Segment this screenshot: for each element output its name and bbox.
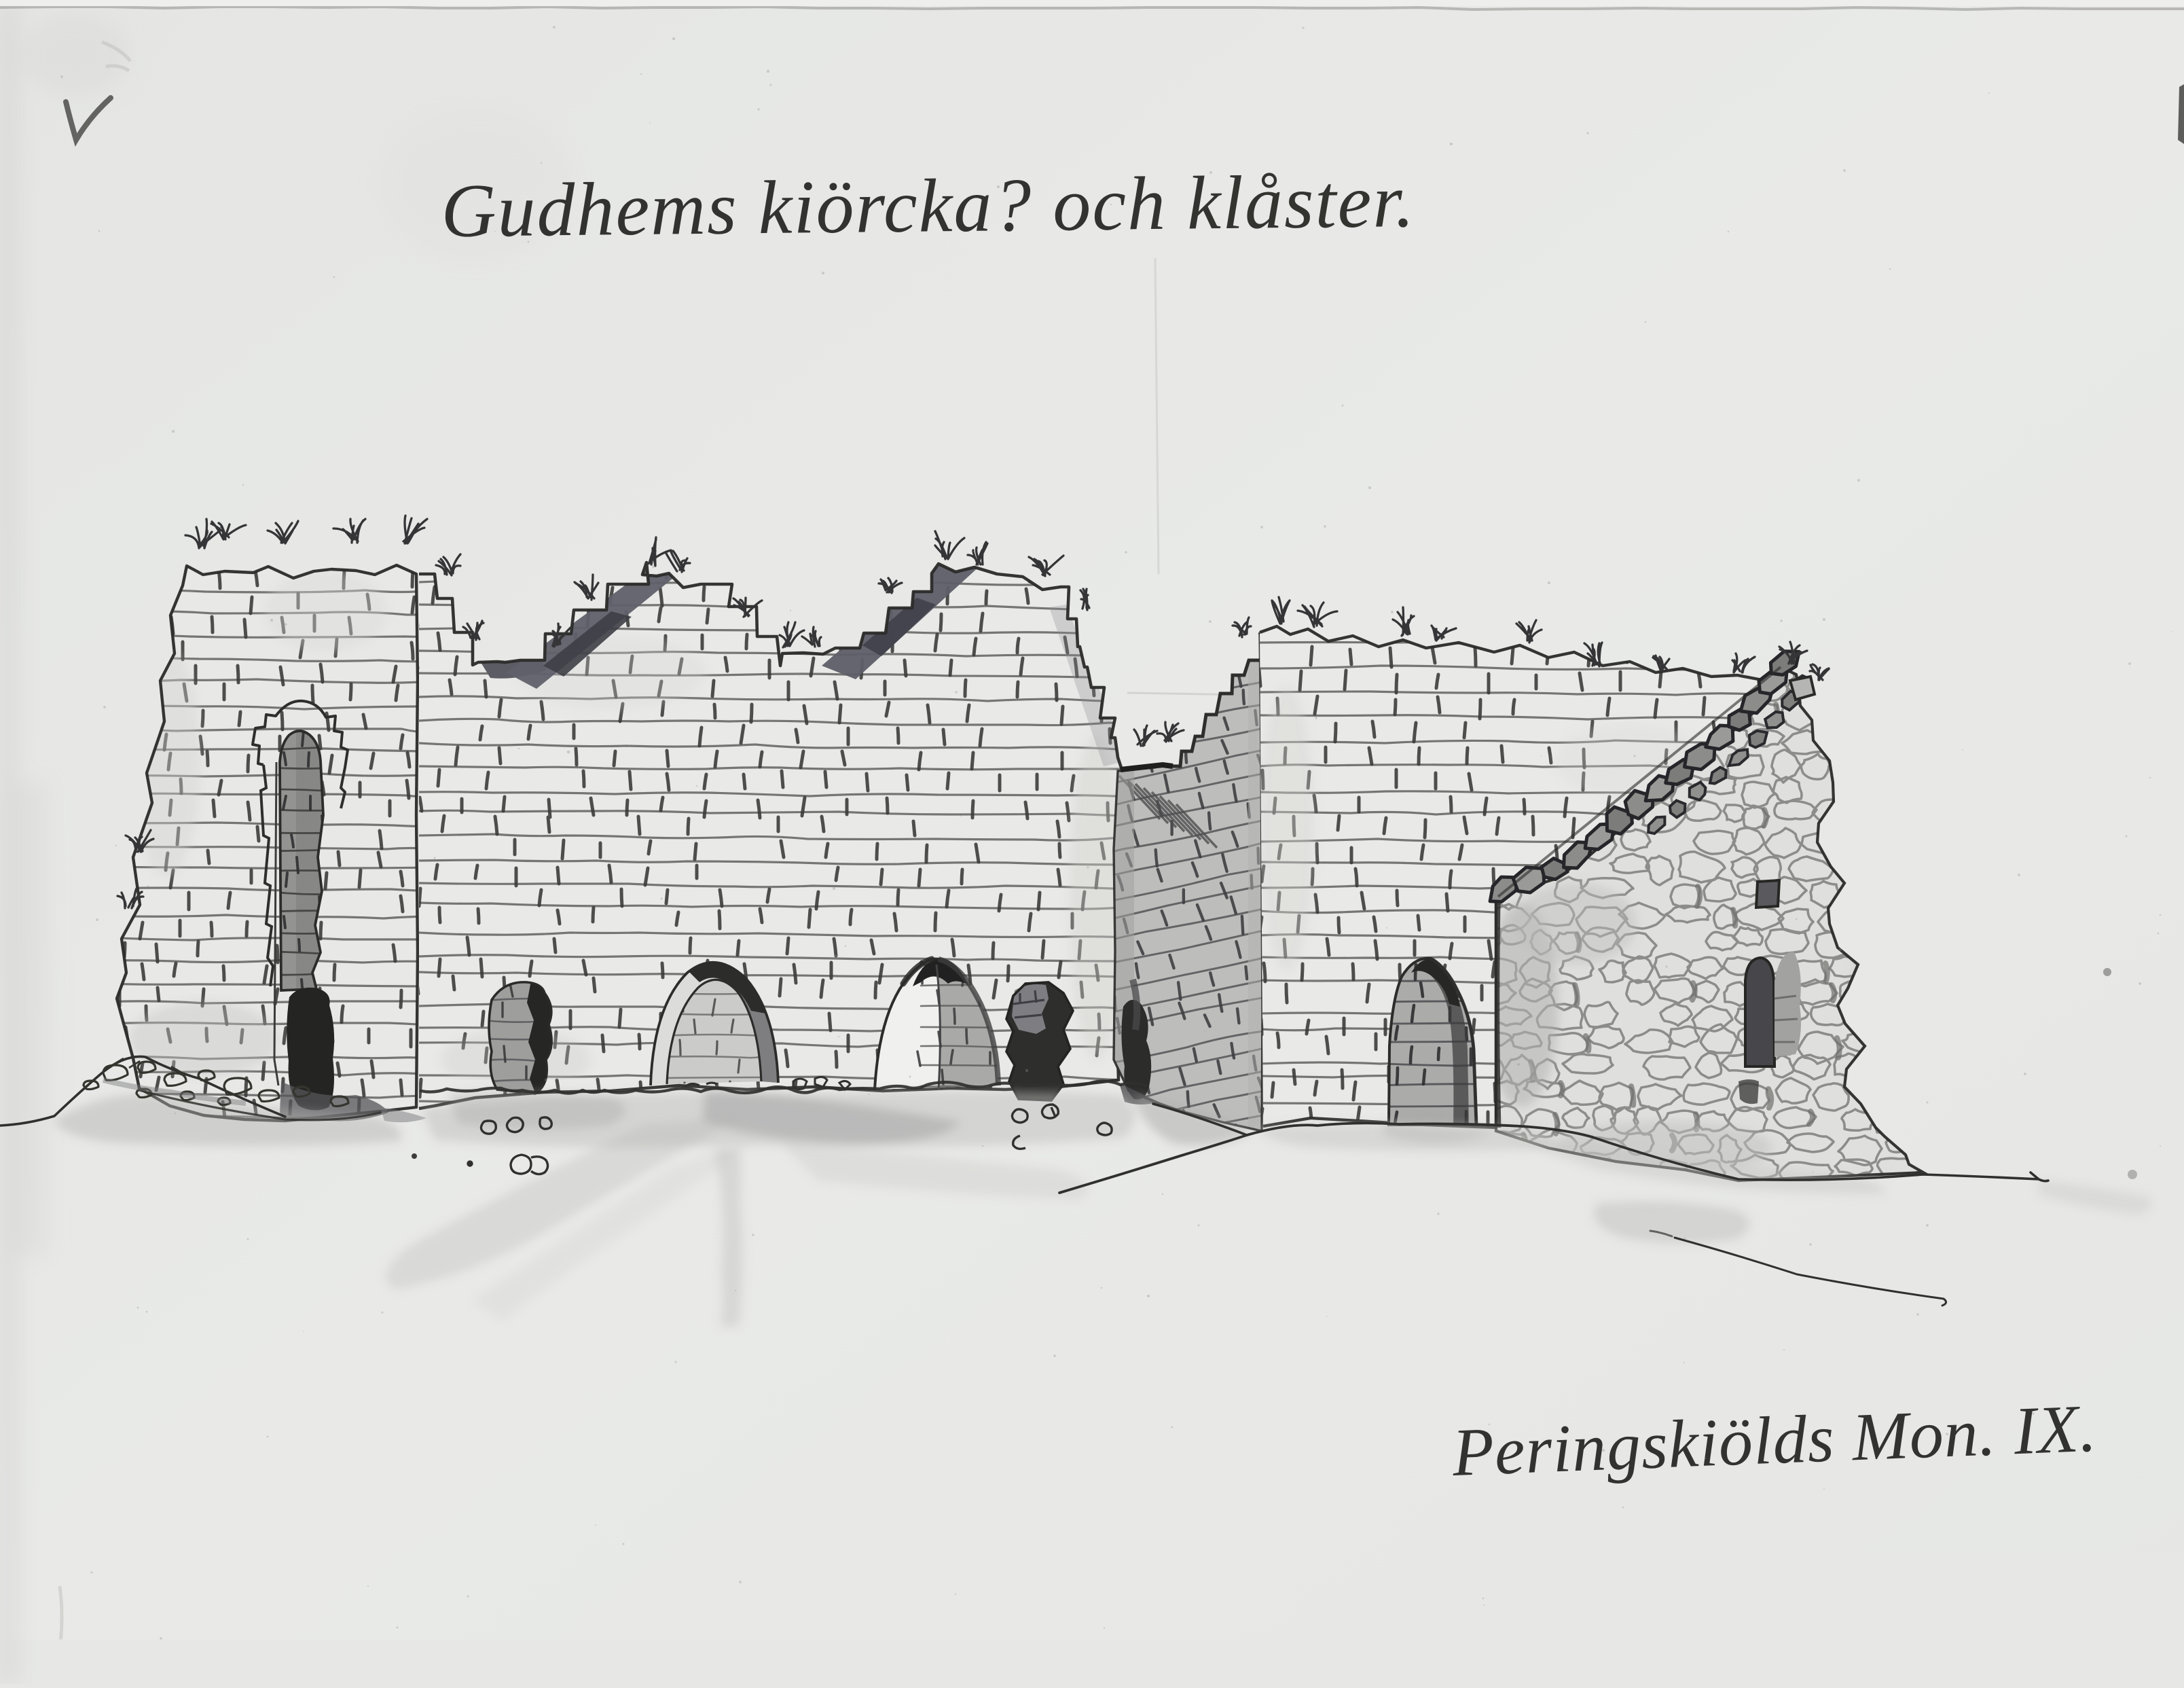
svg-text:Gudhems kiörcka? och klåster.: Gudhems kiörcka? och klåster. bbox=[441, 159, 1416, 253]
